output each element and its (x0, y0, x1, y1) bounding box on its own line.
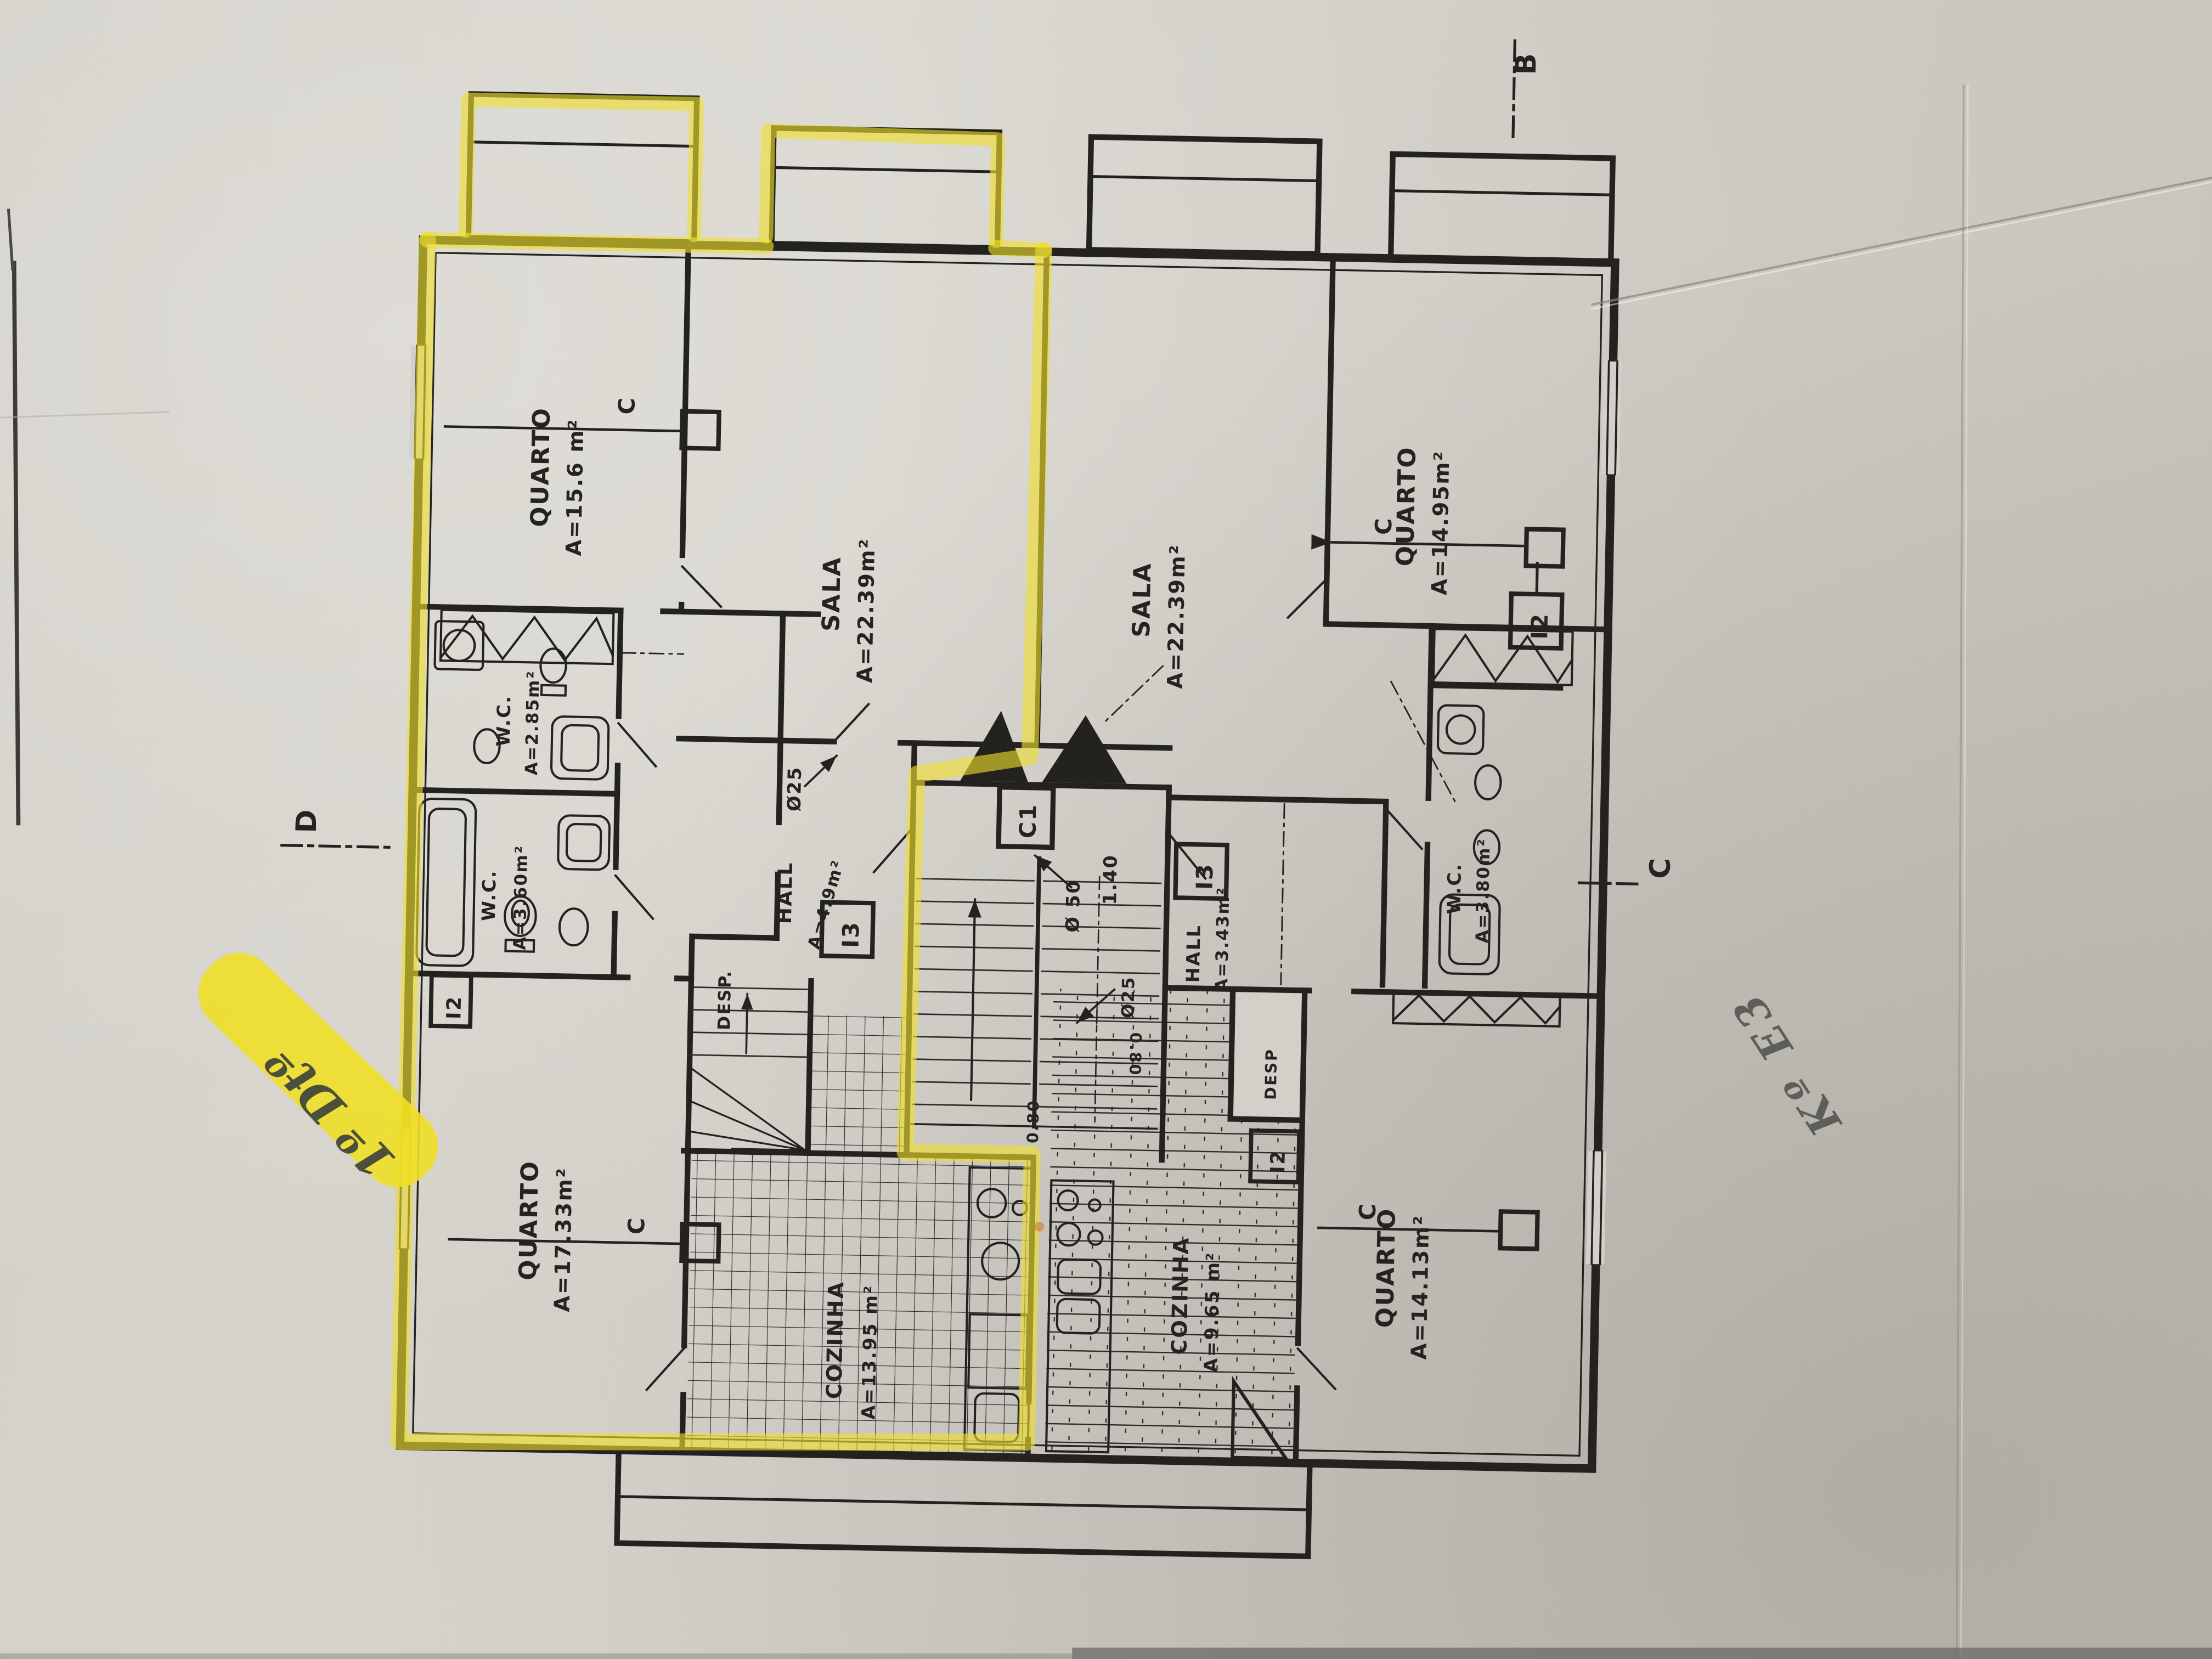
door-box-i2-wc: I2 (443, 995, 466, 1019)
corridor-tiles (811, 1015, 907, 1155)
balcony-top-2 (772, 128, 1000, 248)
room-quarto-tr-area: A=14.95m² (1427, 450, 1454, 595)
door-box-i2-right-bottom: I2 (1267, 1149, 1290, 1173)
section-label-c3: C (623, 1216, 650, 1235)
balcony-top-3 (1089, 137, 1319, 255)
balcony-top-4 (1391, 154, 1613, 263)
dim-d50: Ø 50 (1062, 879, 1084, 933)
room-hall-right-name: HALL (1182, 924, 1205, 983)
dim-d25: Ø25 (1118, 976, 1138, 1019)
room-quarto-tl-name: QUARTO (526, 407, 556, 527)
room-sala-right-area: A=22.39m² (1163, 544, 1190, 689)
balcony-top-1 (469, 94, 697, 242)
room-desp-left-name: DESP. (714, 969, 735, 1030)
room-hall-right-area: A=3.43m² (1212, 886, 1234, 992)
pencil-note-text: Kº E3 (1721, 981, 1852, 1145)
room-desp-right-name: DESP (1262, 1048, 1281, 1100)
room-wc-large-area: A=3.60m² (510, 844, 532, 950)
room-quarto-tr-name: QUARTO (1391, 446, 1421, 567)
door-box-i2-right-top: I2 (1526, 612, 1553, 640)
balcony-bottom (617, 1450, 1310, 1556)
room-wc-right-name: W.C. (1443, 862, 1465, 915)
room-wc-small-name: W.C. (493, 695, 515, 747)
room-quarto-br-name: QUARTO (1371, 1207, 1401, 1328)
room-wc-small-area: A=2.85m² (522, 670, 544, 776)
room-quarto-bl-area: A=17.33m² (550, 1167, 577, 1312)
room-cozinha-left-name: COZINHA (822, 1280, 849, 1400)
dim-080-b: 0.80 (1024, 1099, 1043, 1144)
room-cozinha-right-name: COZINHA (1167, 1237, 1194, 1356)
room-hall-left-dia: Ø25 (783, 766, 806, 811)
room-quarto-bl-name: QUARTO (514, 1160, 544, 1280)
marker-d: D (290, 808, 324, 833)
room-hall-left-name: HALL (774, 861, 797, 924)
marker-c: C (1644, 856, 1677, 879)
room-sala-left-name: SALA (817, 556, 847, 631)
dim-080-a: 0.80 (1126, 1032, 1145, 1076)
floor-plan-svg: C C C C C1 I3 I3 I2 I2 I2 (0, 0, 2212, 1659)
plan-drawing: C C C C C1 I3 I3 I2 I2 I2 (268, 18, 1692, 1564)
room-quarto-tl-area: A=15.6 m² (562, 418, 589, 556)
room-cozinha-right-area: A=9.65 m² (1200, 1251, 1223, 1373)
room-wc-large-name: W.C. (478, 869, 500, 921)
elevator-box-label: C1 (1014, 803, 1041, 839)
room-quarto-br-area: A=14.13m² (1407, 1214, 1434, 1359)
room-sala-left-area: A=22.39m² (853, 538, 880, 683)
room-wc-right-area: A=3.80m² (1472, 838, 1494, 944)
door-box-i3-left: I3 (838, 921, 865, 948)
dim-140: 1.40 (1099, 854, 1121, 905)
wardrobe-left (441, 610, 613, 664)
service-staircase (686, 984, 808, 1153)
floor-plan-photo: C C C C C1 I3 I3 I2 I2 I2 (0, 0, 2212, 1659)
room-sala-right-name: SALA (1127, 562, 1157, 637)
section-label-c1: C (613, 396, 640, 415)
room-cozinha-left-area: A=13.95 m² (857, 1284, 882, 1420)
